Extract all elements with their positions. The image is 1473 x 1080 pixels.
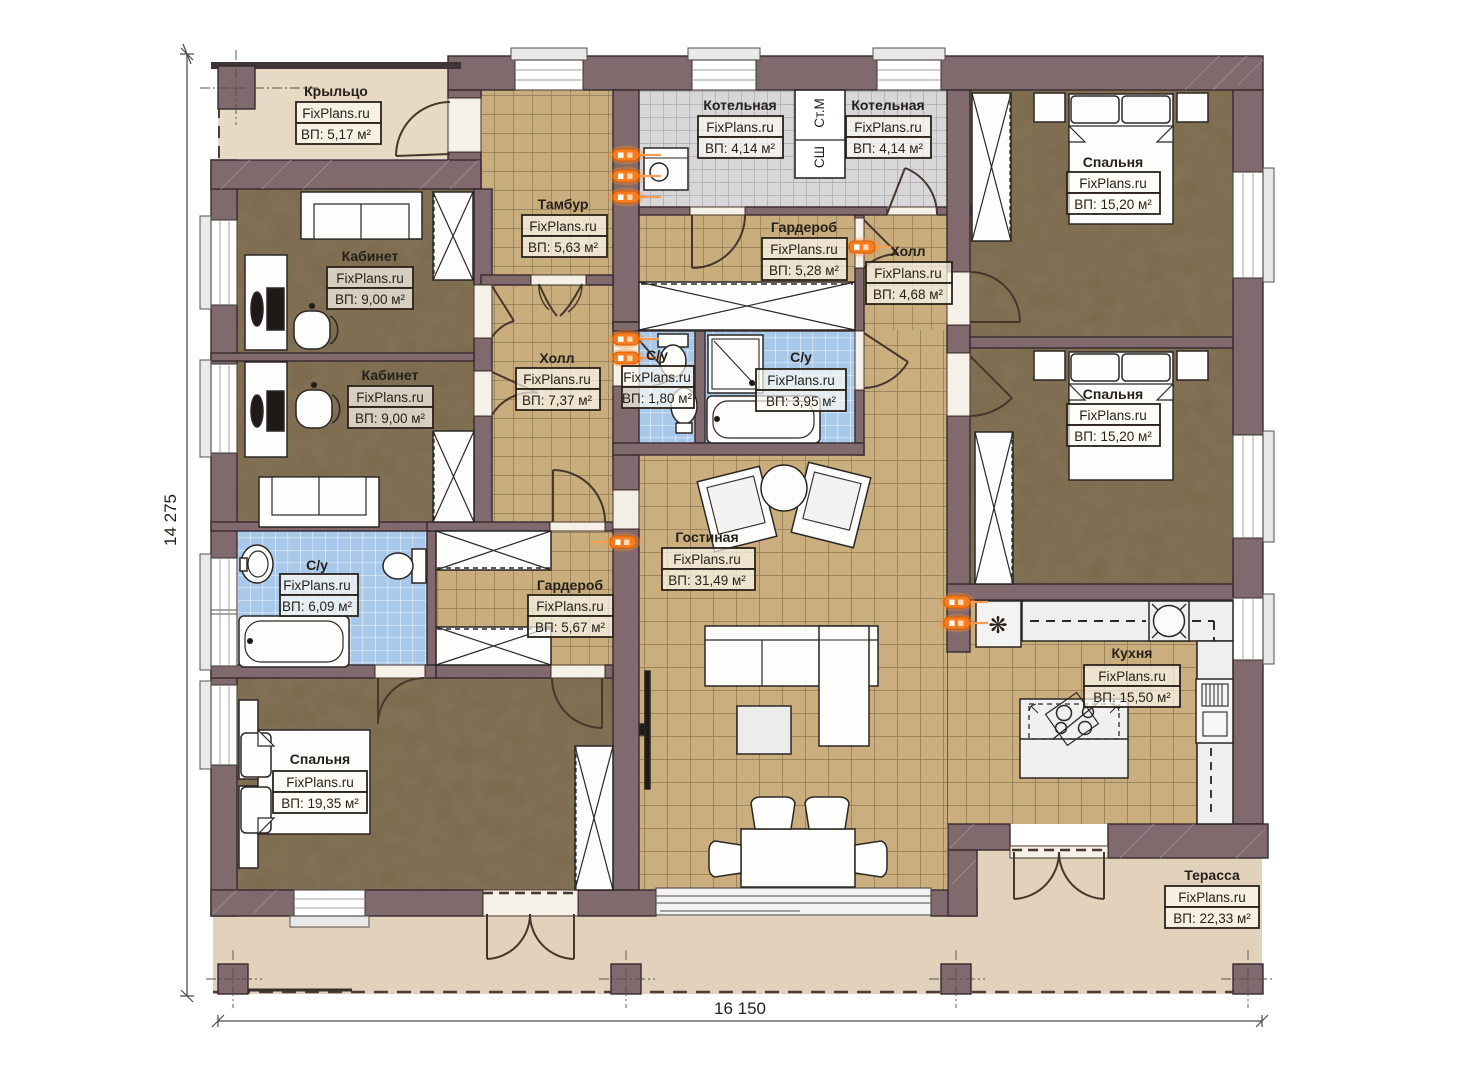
svg-text:Спальня: Спальня (1083, 386, 1143, 402)
svg-text:Терасса: Терасса (1184, 867, 1240, 883)
svg-text:ВП: 5,28 м²: ВП: 5,28 м² (769, 263, 840, 278)
svg-text:СШ: СШ (812, 146, 827, 168)
svg-text:FixPlans.ru: FixPlans.ru (336, 271, 404, 286)
svg-text:ВП: 15,20 м²: ВП: 15,20 м² (1074, 429, 1152, 444)
svg-text:ВП: 4,68 м²: ВП: 4,68 м² (873, 287, 944, 302)
svg-text:FixPlans.ru: FixPlans.ru (854, 120, 922, 135)
svg-text:ВП: 4,14 м²: ВП: 4,14 м² (853, 141, 924, 156)
svg-text:С/у: С/у (306, 557, 328, 573)
svg-text:ВП: 4,14 м²: ВП: 4,14 м² (705, 141, 776, 156)
svg-text:ВП: 3,95 м²: ВП: 3,95 м² (766, 394, 837, 409)
svg-text:ВП: 19,35 м²: ВП: 19,35 м² (281, 796, 359, 811)
svg-text:ВП: 15,50 м²: ВП: 15,50 м² (1093, 690, 1171, 705)
svg-text:ВП: 9,00 м²: ВП: 9,00 м² (355, 411, 426, 426)
svg-text:FixPlans.ru: FixPlans.ru (1178, 890, 1246, 905)
svg-text:ВП: 9,00 м²: ВП: 9,00 м² (335, 292, 406, 307)
svg-text:Гостиная: Гостиная (675, 529, 738, 545)
svg-text:Кухня: Кухня (1112, 645, 1153, 661)
svg-text:FixPlans.ru: FixPlans.ru (770, 242, 838, 257)
svg-text:ВП: 6,09 м²: ВП: 6,09 м² (282, 599, 353, 614)
svg-text:ВП: 15,20 м²: ВП: 15,20 м² (1074, 197, 1152, 212)
svg-text:FixPlans.ru: FixPlans.ru (283, 578, 351, 593)
svg-text:FixPlans.ru: FixPlans.ru (286, 775, 354, 790)
svg-text:FixPlans.ru: FixPlans.ru (302, 106, 370, 121)
svg-text:Кабинет: Кабинет (362, 367, 419, 383)
svg-text:Котельная: Котельная (703, 97, 776, 113)
svg-text:FixPlans.ru: FixPlans.ru (1098, 669, 1166, 684)
svg-text:FixPlans.ru: FixPlans.ru (523, 372, 591, 387)
svg-text:❋: ❋ (988, 612, 1007, 638)
svg-text:ВП: 5,63 м²: ВП: 5,63 м² (528, 240, 599, 255)
svg-text:С/у: С/у (646, 347, 668, 363)
svg-text:FixPlans.ru: FixPlans.ru (874, 266, 942, 281)
svg-text:Крыльцо: Крыльцо (304, 83, 368, 99)
svg-text:FixPlans.ru: FixPlans.ru (623, 370, 691, 385)
svg-text:ВП: 22,33 м²: ВП: 22,33 м² (1173, 911, 1251, 926)
svg-text:16 150: 16 150 (714, 999, 766, 1018)
svg-text:Спальня: Спальня (1083, 154, 1143, 170)
svg-text:FixPlans.ru: FixPlans.ru (767, 373, 835, 388)
svg-text:FixPlans.ru: FixPlans.ru (1079, 408, 1147, 423)
svg-text:FixPlans.ru: FixPlans.ru (536, 599, 604, 614)
svg-text:Кабинет: Кабинет (342, 248, 399, 264)
svg-text:ВП: 31,49 м²: ВП: 31,49 м² (668, 573, 746, 588)
svg-text:ВП: 1,80 м²: ВП: 1,80 м² (622, 391, 693, 406)
svg-text:ВП: 5,67 м²: ВП: 5,67 м² (535, 620, 606, 635)
svg-text:FixPlans.ru: FixPlans.ru (1079, 176, 1147, 191)
svg-text:Котельная: Котельная (851, 97, 924, 113)
svg-text:FixPlans.ru: FixPlans.ru (706, 120, 774, 135)
svg-text:ВП: 5,17 м²: ВП: 5,17 м² (301, 127, 372, 142)
svg-text:FixPlans.ru: FixPlans.ru (529, 219, 597, 234)
svg-text:Спальня: Спальня (290, 751, 350, 767)
svg-text:ВП: 7,37 м²: ВП: 7,37 м² (522, 393, 593, 408)
svg-text:Ст.М: Ст.М (812, 98, 827, 127)
svg-text:Тамбур: Тамбур (538, 196, 589, 212)
svg-text:Холл: Холл (539, 350, 574, 366)
svg-text:FixPlans.ru: FixPlans.ru (673, 552, 741, 567)
svg-text:Гардероб: Гардероб (537, 577, 604, 593)
svg-text:Холл: Холл (890, 243, 925, 259)
svg-text:14 275: 14 275 (161, 494, 180, 546)
svg-text:Гардероб: Гардероб (771, 219, 838, 235)
svg-text:FixPlans.ru: FixPlans.ru (356, 390, 424, 405)
svg-text:С/у: С/у (790, 349, 812, 365)
